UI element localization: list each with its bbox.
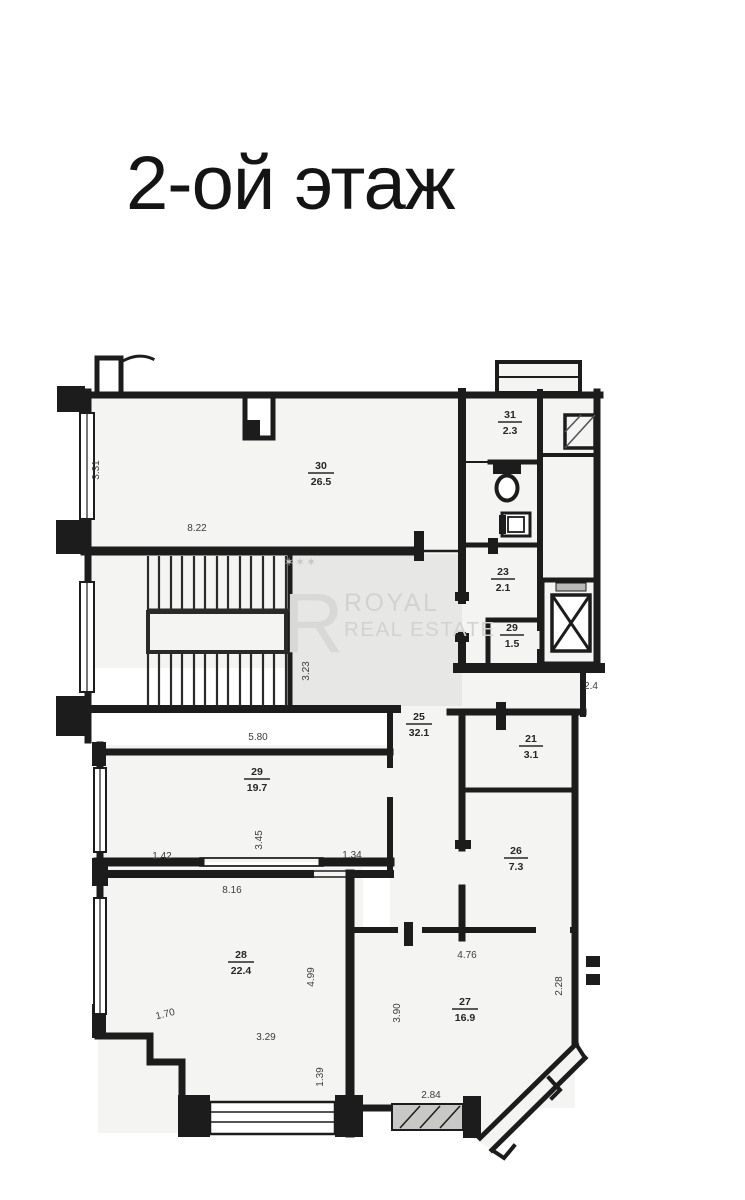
sink-icon	[499, 513, 530, 536]
dim-r27-width: 4.76	[457, 950, 477, 961]
dim-r27-bottom: 2.84	[421, 1090, 441, 1101]
dim-hall-width: 2.4	[584, 681, 598, 692]
dim-r30-height: 3.31	[91, 460, 102, 480]
toilet-icon	[493, 463, 521, 501]
dim-r29-width: 5.80	[248, 732, 268, 743]
dim-r29-right: 1.34	[342, 850, 362, 861]
room-28-number: 28	[235, 949, 247, 961]
dim-r28-height: 4.99	[306, 967, 317, 987]
room-26-number: 26	[510, 845, 522, 857]
room-28-area: 22.4	[231, 965, 252, 977]
room-21-area: 3.1	[524, 749, 539, 761]
dim-r27-right: 2.28	[554, 976, 565, 996]
room-23-number: 23	[497, 566, 509, 578]
room-29-number: 29	[251, 766, 263, 778]
room-25-area: 32.1	[409, 727, 430, 739]
room-30-number: 30	[315, 460, 327, 472]
watermark-tint	[288, 554, 462, 706]
dim-r27-left: 3.90	[392, 1003, 403, 1023]
room-30-area: 26.5	[311, 476, 332, 488]
elevator	[542, 580, 596, 664]
room-31-area: 2.3	[503, 425, 518, 437]
room-29s-number: 29	[506, 622, 518, 634]
room-29s-area: 1.5	[505, 638, 520, 650]
vent-shaft	[565, 415, 595, 448]
duct-box	[245, 396, 273, 438]
dim-stair-hall-height: 3.23	[301, 661, 312, 681]
dim-r28-bottom: 1.39	[315, 1067, 326, 1087]
room-25-number: 25	[413, 711, 425, 723]
room-27-number: 27	[459, 996, 471, 1008]
room-26-area: 7.3	[509, 861, 524, 873]
floor-plan: 30 26.5 31 2.3 23 2.1 29 1.5 25	[0, 0, 745, 1200]
room-27-area: 16.9	[455, 1012, 476, 1024]
dim-r28-width: 8.16	[222, 885, 242, 896]
dim-r30-width: 8.22	[187, 523, 207, 534]
building-floor-fill	[85, 392, 600, 1150]
room-29-area: 19.7	[247, 782, 268, 794]
dim-r29-left: 1.42	[152, 851, 172, 862]
dim-r29-height: 3.45	[254, 830, 265, 850]
room-23-area: 2.1	[496, 582, 511, 594]
dim-r28-inner: 3.29	[256, 1032, 276, 1043]
room-21-number: 21	[525, 733, 537, 745]
room-31-number: 31	[504, 409, 516, 421]
page: 2-ой этаж	[0, 0, 745, 1200]
